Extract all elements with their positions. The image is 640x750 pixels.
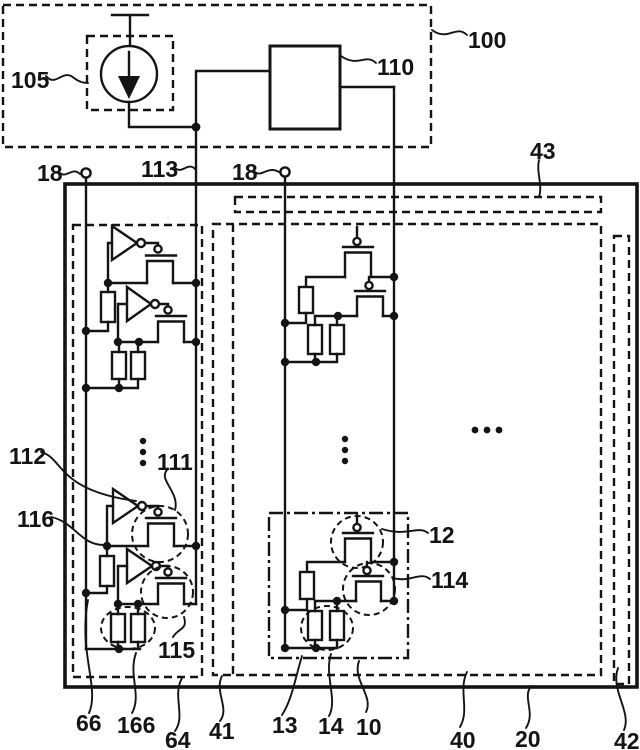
junction-dot: [390, 558, 398, 566]
label-10: 10: [356, 714, 382, 740]
transistor-channel: [357, 297, 383, 317]
control-block-110: [270, 46, 340, 129]
label-100: 100: [468, 27, 506, 53]
label-42: 42: [614, 728, 640, 750]
label-111: 111: [157, 449, 193, 475]
leader-12: [382, 529, 428, 533]
resistor: [308, 325, 322, 354]
inverter-1: [112, 226, 137, 260]
current-source-icon: [101, 46, 157, 102]
resistor: [300, 572, 314, 599]
leader-110: [341, 56, 376, 63]
junction-dot: [390, 273, 398, 281]
gate-bubble: [353, 524, 360, 531]
leader-43: [538, 160, 540, 197]
inverter-4: [127, 549, 152, 583]
junction-dot: [312, 358, 320, 366]
junction-dot: [192, 338, 200, 346]
inverter-2: [127, 287, 151, 321]
label-113: 113: [141, 156, 178, 182]
patent-figure: 105 110 100 113 18 18 43 112 111 116 12 …: [0, 0, 640, 750]
junction-dot: [82, 589, 90, 597]
resistor: [308, 611, 322, 640]
label-110: 110: [377, 54, 414, 80]
panel-outline-20: [65, 184, 637, 687]
junction-dot: [82, 327, 90, 335]
vertical-ellipsis-right: [342, 436, 348, 464]
label-43: 43: [530, 138, 556, 164]
junction-dot: [281, 319, 289, 327]
resistor: [131, 352, 145, 379]
junction-dot: [390, 312, 398, 320]
junction-dot: [82, 384, 90, 392]
leader-100: [432, 30, 467, 35]
resistor: [330, 325, 344, 354]
label-12: 12: [429, 522, 455, 548]
leader-166: [132, 653, 136, 713]
label-20: 20: [515, 726, 541, 750]
leader-18-right: [254, 170, 279, 174]
label-166: 166: [117, 712, 155, 738]
leader-115: [173, 617, 185, 637]
transistor-channel: [345, 539, 371, 563]
transistor-channel: [356, 582, 381, 602]
label-115: 115: [158, 637, 195, 663]
leader-105: [46, 75, 88, 83]
power-rail-icon: [112, 15, 148, 46]
label-116: 116: [17, 506, 54, 532]
terminal-18-left: [81, 168, 90, 177]
resistor: [131, 614, 145, 642]
gate-bubble: [353, 238, 360, 245]
inverter-3: [113, 489, 138, 523]
label-112: 112: [9, 443, 46, 469]
label-66: 66: [76, 710, 102, 736]
leader-41: [220, 676, 224, 721]
label-40: 40: [450, 727, 476, 750]
gate-bubble: [164, 568, 171, 575]
panel-regions: [65, 184, 637, 687]
gate-bubble: [154, 245, 161, 252]
junction-dot: [192, 542, 200, 550]
resistor: [112, 352, 126, 379]
gate-bubble: [164, 306, 171, 313]
label-41: 41: [209, 718, 235, 744]
label-18-right: 18: [232, 159, 258, 185]
transistor-channel: [158, 584, 184, 605]
junction-dot: [281, 358, 289, 366]
resistor: [100, 556, 114, 586]
leader-114: [393, 576, 430, 579]
leader-42: [616, 668, 626, 730]
resistor: [330, 611, 344, 640]
pixel-circuit-column: [269, 227, 502, 658]
label-64: 64: [165, 727, 191, 750]
resistor: [101, 292, 115, 322]
transistor-channel: [148, 524, 174, 547]
label-18-left: 18: [37, 160, 63, 186]
label-14: 14: [318, 713, 344, 739]
transistor-channel: [147, 261, 173, 283]
junction-dot: [281, 644, 289, 652]
gate-bubble: [365, 282, 372, 289]
transistor-channel: [345, 253, 371, 278]
junction-dot: [192, 279, 200, 287]
horizontal-ellipsis-display: [472, 427, 503, 434]
resistor: [111, 614, 125, 642]
resistor: [299, 287, 313, 313]
label-105: 105: [11, 67, 50, 93]
junction-dot: [115, 384, 123, 392]
highlight-ellipse-166: [101, 607, 155, 649]
leader-40: [460, 672, 467, 727]
wire: [196, 71, 270, 127]
label-114: 114: [431, 567, 468, 593]
driver-circuit-left: [82, 226, 200, 653]
terminal-18-right: [280, 167, 289, 176]
leader-66: [85, 600, 92, 713]
leader-20: [526, 686, 531, 728]
top-dummy-region-43: [235, 197, 601, 212]
label-13: 13: [272, 712, 298, 738]
leader-111: [165, 470, 176, 510]
leader-116: [51, 517, 104, 545]
wire: [129, 102, 196, 127]
gate-bubble: [154, 508, 161, 515]
right-dummy-region-42: [614, 236, 629, 684]
junction-dot: [281, 606, 289, 614]
vertical-ellipsis-left: [140, 438, 146, 466]
leader-14: [329, 654, 332, 716]
transistor-channel: [158, 322, 184, 343]
wire: [306, 277, 394, 287]
gate-bubble: [363, 567, 370, 574]
